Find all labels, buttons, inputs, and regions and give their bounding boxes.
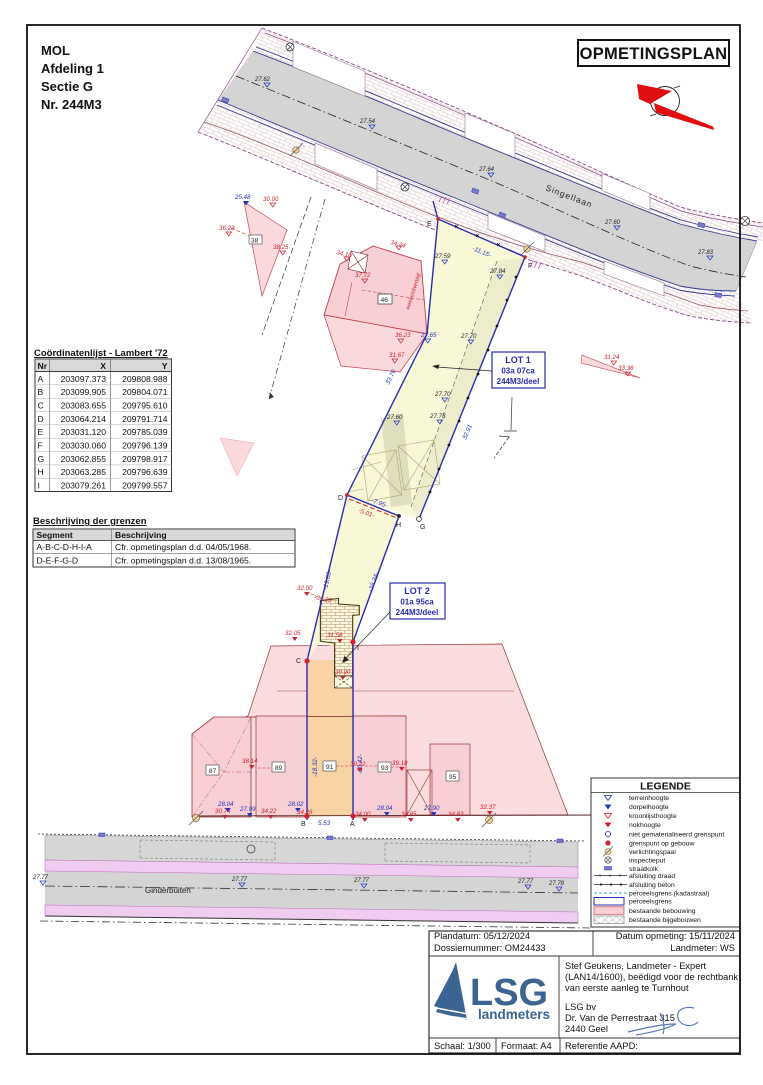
svg-text:F: F — [528, 263, 532, 270]
svg-text:30.00: 30.00 — [263, 196, 279, 203]
svg-text:G: G — [420, 524, 425, 531]
svg-text:32.00: 32.00 — [297, 585, 313, 592]
svg-text:93: 93 — [381, 765, 389, 772]
svg-text:203031.120: 203031.120 — [61, 427, 107, 437]
svg-text:A: A — [350, 821, 355, 828]
svg-text:nokhoogte: nokhoogte — [629, 822, 661, 829]
svg-text:Afdeling 1: Afdeling 1 — [41, 61, 104, 76]
svg-text:Plandatum: 05/12/2024: Plandatum: 05/12/2024 — [434, 931, 530, 941]
svg-text:38.14: 38.14 — [242, 758, 258, 765]
svg-text:38.25: 38.25 — [273, 244, 289, 251]
svg-text:D-E-F-G-D: D-E-F-G-D — [37, 556, 79, 566]
svg-text:bestaande bijgebouwen: bestaande bijgebouwen — [629, 917, 701, 924]
svg-text:34.26: 34.26 — [297, 809, 313, 816]
svg-text:37.72: 37.72 — [355, 272, 371, 279]
svg-text:203097.373: 203097.373 — [61, 374, 107, 384]
svg-text:95: 95 — [449, 774, 457, 781]
svg-text:89: 89 — [275, 765, 283, 772]
svg-text:LEGENDE: LEGENDE — [640, 781, 691, 793]
svg-text:Cfr. opmetingsplan d.d. 13/08/: Cfr. opmetingsplan d.d. 13/08/1965. — [115, 556, 251, 566]
svg-text:34.83: 34.83 — [448, 811, 464, 818]
svg-text:LOT 2: LOT 2 — [404, 586, 430, 596]
svg-text:25.48: 25.48 — [234, 194, 251, 201]
svg-text:27.70: 27.70 — [434, 391, 451, 398]
svg-text:afsluiting beton: afsluiting beton — [629, 882, 675, 889]
svg-text:33.36: 33.36 — [618, 365, 634, 372]
svg-text:G: G — [38, 454, 45, 464]
svg-text:E: E — [38, 427, 44, 437]
svg-text:A: A — [38, 374, 44, 384]
svg-text:28.04: 28.04 — [217, 801, 234, 808]
svg-text:H: H — [396, 522, 401, 529]
svg-text:Dossiernummer: OM24433: Dossiernummer: OM24433 — [434, 943, 546, 953]
svg-text:inspectieput: inspectieput — [629, 858, 665, 865]
svg-text:Referentie AAPD:: Referentie AAPD: — [565, 1041, 638, 1051]
svg-text:dorpelhoogte: dorpelhoogte — [629, 804, 669, 811]
svg-text:Beschrijving: Beschrijving — [115, 530, 167, 540]
svg-text:niet gematerialiseerd grenspun: niet gematerialiseerd grenspunt — [629, 832, 724, 839]
svg-text:27.70: 27.70 — [460, 333, 477, 340]
svg-text:27.84: 27.84 — [489, 268, 506, 275]
svg-text:32.05: 32.05 — [285, 630, 301, 637]
svg-text:Schaal: 1/300: Schaal: 1/300 — [434, 1041, 491, 1051]
svg-text:03a 07ca: 03a 07ca — [501, 367, 535, 376]
svg-text:203083.655: 203083.655 — [61, 401, 107, 411]
svg-text:27.99: 27.99 — [239, 806, 256, 813]
svg-text:27.73: 27.73 — [429, 413, 446, 420]
svg-text:209785.039: 209785.039 — [122, 427, 168, 437]
svg-text:LSG bv: LSG bv — [565, 1002, 596, 1012]
svg-text:209791.714: 209791.714 — [122, 414, 168, 424]
svg-text:H: H — [38, 467, 44, 477]
svg-text:203064.214: 203064.214 — [61, 414, 107, 424]
svg-text:27.78: 27.78 — [548, 881, 565, 887]
svg-text:perceelsgrens (kadastraal): perceelsgrens (kadastraal) — [629, 891, 709, 898]
svg-text:grenspunt op gebouw: grenspunt op gebouw — [629, 841, 694, 848]
svg-text:27.62: 27.62 — [254, 77, 271, 83]
svg-text:203062.855: 203062.855 — [61, 454, 107, 464]
svg-text:van eerste aanleg te Turnhout: van eerste aanleg te Turnhout — [565, 983, 689, 993]
svg-text:34.00: 34.00 — [355, 811, 371, 818]
svg-text:27.77: 27.77 — [517, 879, 534, 885]
svg-text:87: 87 — [209, 768, 217, 775]
svg-text:46: 46 — [381, 297, 389, 304]
svg-text:F: F — [38, 441, 43, 451]
svg-text:Coördinatenlijst - Lambert '72: Coördinatenlijst - Lambert '72 — [34, 348, 168, 359]
svg-text:kroonlijsthoogte: kroonlijsthoogte — [629, 813, 677, 820]
svg-text:244M3/deel: 244M3/deel — [497, 377, 540, 386]
svg-text:01a 95ca: 01a 95ca — [400, 598, 434, 607]
svg-text:D: D — [338, 495, 343, 502]
svg-text:landmeters: landmeters — [478, 1007, 550, 1022]
svg-text:27.59: 27.59 — [434, 253, 451, 260]
svg-text:209808.988: 209808.988 — [122, 374, 168, 384]
svg-text:C: C — [296, 658, 301, 665]
svg-text:B: B — [301, 821, 306, 828]
svg-text:28.02: 28.02 — [287, 801, 304, 808]
svg-text:27.65: 27.65 — [420, 332, 437, 339]
svg-text:Datum opmeting: 15/11/2024: Datum opmeting: 15/11/2024 — [616, 931, 735, 941]
svg-text:Y: Y — [162, 361, 168, 371]
svg-text:bestaande bebouwing: bestaande bebouwing — [629, 908, 696, 915]
svg-text:Nr: Nr — [38, 361, 48, 371]
svg-text:209804.071: 209804.071 — [122, 387, 168, 397]
svg-text:E: E — [427, 221, 432, 228]
svg-text:28.04: 28.04 — [376, 805, 393, 812]
svg-text:2440 Geel: 2440 Geel — [565, 1024, 608, 1034]
svg-text:38: 38 — [251, 238, 259, 245]
svg-text:34.22: 34.22 — [261, 808, 277, 815]
svg-text:27.77: 27.77 — [231, 877, 248, 883]
svg-text:C: C — [38, 401, 44, 411]
svg-text:27.60: 27.60 — [604, 220, 621, 226]
svg-text:27.77: 27.77 — [353, 878, 370, 884]
svg-text:D: D — [38, 414, 44, 424]
svg-text:203079.261: 203079.261 — [61, 481, 107, 491]
svg-text:verlichtingspaal: verlichtingspaal — [629, 849, 676, 856]
svg-text:Landmeter: WS: Landmeter: WS — [670, 943, 735, 953]
svg-text:perceelsgrens: perceelsgrens — [629, 899, 672, 906]
svg-text:Formaat: A4: Formaat: A4 — [501, 1041, 552, 1051]
svg-text:203030.060: 203030.060 — [61, 441, 107, 451]
svg-text:I: I — [38, 481, 40, 491]
svg-text:Dr. Van de Perrestraat 315: Dr. Van de Perrestraat 315 — [565, 1013, 675, 1023]
svg-text:(LAN14/1600), beëdigd voor de: (LAN14/1600), beëdigd voor de rechtbank — [565, 972, 738, 982]
svg-text:OPMETINGSPLAN: OPMETINGSPLAN — [580, 45, 728, 63]
svg-text:A-B-C-D-H-I-A: A-B-C-D-H-I-A — [37, 542, 93, 552]
svg-text:36.23: 36.23 — [219, 225, 235, 232]
svg-text:209795.610: 209795.610 — [122, 401, 168, 411]
svg-text:afsluiting draad: afsluiting draad — [629, 873, 675, 880]
svg-text:Ginderbuiten: Ginderbuiten — [145, 886, 191, 895]
svg-text:MOL: MOL — [41, 43, 70, 58]
svg-text:27.60: 27.60 — [386, 414, 403, 421]
svg-text:209799.557: 209799.557 — [122, 481, 168, 491]
svg-text:27.83: 27.83 — [697, 250, 714, 256]
svg-text:27.90: 27.90 — [423, 805, 440, 812]
svg-text:straatkolk: straatkolk — [629, 866, 659, 873]
svg-text:LOT 1: LOT 1 — [505, 355, 531, 365]
svg-text:31.24: 31.24 — [604, 354, 620, 361]
svg-text:27.54: 27.54 — [359, 119, 376, 125]
svg-text:209796.639: 209796.639 — [122, 467, 168, 477]
svg-text:31.58: 31.58 — [327, 632, 343, 639]
svg-text:203063.285: 203063.285 — [61, 467, 107, 477]
svg-text:244M3/deel: 244M3/deel — [396, 608, 439, 617]
svg-text:203099.905: 203099.905 — [61, 387, 107, 397]
svg-text:Segment: Segment — [37, 530, 73, 540]
svg-text:30.90: 30.90 — [335, 669, 351, 676]
svg-text:Beschrijving der grenzen: Beschrijving der grenzen — [33, 516, 147, 527]
svg-text:32.37: 32.37 — [480, 804, 496, 811]
svg-text:-18.32-: -18.32- — [312, 757, 319, 777]
svg-text:209798.917: 209798.917 — [122, 454, 168, 464]
svg-text:36.23: 36.23 — [395, 332, 411, 339]
svg-text:Nr. 244M3: Nr. 244M3 — [41, 97, 102, 112]
svg-text:39.18: 39.18 — [392, 760, 408, 767]
svg-text:terreinhoogte: terreinhoogte — [629, 795, 669, 802]
svg-text:39.22: 39.22 — [350, 761, 366, 768]
svg-text:27.64: 27.64 — [478, 167, 495, 173]
svg-text:34.85: 34.85 — [401, 811, 417, 818]
svg-text:Sectie G: Sectie G — [41, 79, 93, 94]
svg-text:B: B — [38, 387, 44, 397]
svg-text:209796.139: 209796.139 — [122, 441, 168, 451]
svg-text:Stef Geukens, Landmeter - Expe: Stef Geukens, Landmeter - Expert — [565, 961, 706, 971]
svg-text:5.53: 5.53 — [318, 820, 331, 827]
svg-text:27.77: 27.77 — [32, 875, 49, 881]
svg-text:X: X — [100, 361, 106, 371]
svg-text:31.67: 31.67 — [389, 352, 405, 359]
svg-text:91: 91 — [326, 764, 334, 771]
svg-text:Cfr. opmetingsplan d.d. 04/05/: Cfr. opmetingsplan d.d. 04/05/1968. — [115, 542, 251, 552]
